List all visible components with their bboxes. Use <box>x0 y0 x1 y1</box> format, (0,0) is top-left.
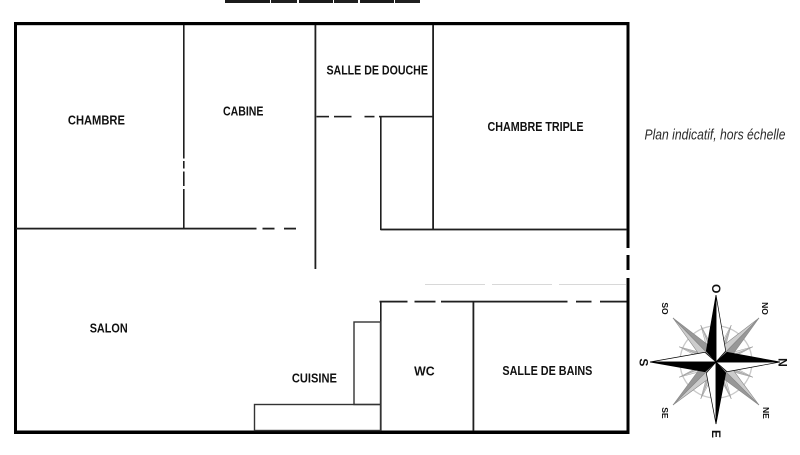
svg-text:NO: NO <box>760 302 770 315</box>
svg-text:SALLE DE DOUCHE: SALLE DE DOUCHE <box>326 63 428 77</box>
svg-text:E: E <box>709 430 723 438</box>
svg-text:S: S <box>637 358 651 366</box>
svg-text:SO: SO <box>660 302 670 315</box>
svg-text:CHAMBRE TRIPLE: CHAMBRE TRIPLE <box>488 120 584 134</box>
svg-text:CABINE: CABINE <box>223 104 264 118</box>
svg-text:CUISINE: CUISINE <box>292 371 337 385</box>
svg-text:N: N <box>776 358 790 367</box>
svg-text:SALLE DE BAINS: SALLE DE BAINS <box>502 364 592 378</box>
svg-text:O: O <box>709 284 723 293</box>
svg-text:WC: WC <box>414 365 435 379</box>
svg-text:CHAMBRE: CHAMBRE <box>68 114 125 128</box>
svg-text:NE: NE <box>761 407 771 419</box>
svg-text:SALON: SALON <box>90 322 128 336</box>
svg-text:SE: SE <box>660 407 670 419</box>
svg-text:Plan indicatif, hors échelle: Plan indicatif, hors échelle <box>645 128 786 144</box>
